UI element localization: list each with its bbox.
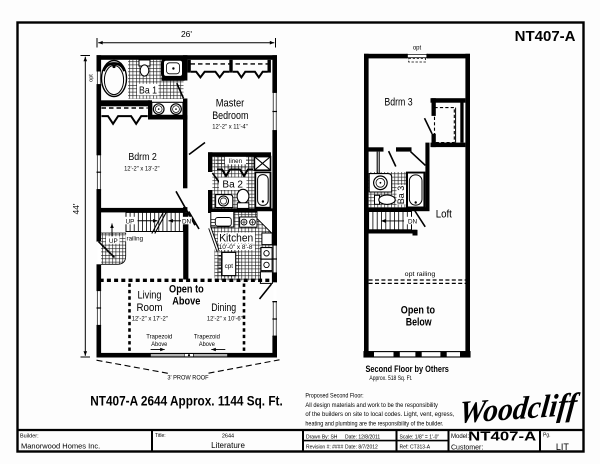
svg-text:3' PROW ROOF: 3' PROW ROOF <box>167 375 208 382</box>
svg-text:Bedroom: Bedroom <box>212 110 248 122</box>
svg-text:Date: 12/8/2011: Date: 12/8/2011 <box>345 435 380 441</box>
svg-text:12'-2" x 17'-2": 12'-2" x 17'-2" <box>132 316 168 323</box>
svg-text:Master: Master <box>216 97 245 109</box>
svg-text:opt: opt <box>413 46 422 52</box>
svg-text:DN: DN <box>408 218 418 225</box>
svg-text:Date: 8/7/2012: Date: 8/7/2012 <box>345 445 378 451</box>
svg-text:opt railing: opt railing <box>405 271 436 278</box>
svg-text:Title:: Title: <box>155 433 166 439</box>
svg-text:heating and plumbing are the r: heating and plumbing are the responsibil… <box>305 420 443 427</box>
svg-text:Scale: 1/8" = 1'-0": Scale: 1/8" = 1'-0" <box>400 435 440 441</box>
svg-text:Ba 1: Ba 1 <box>139 84 157 96</box>
svg-text:Proposed Second Floor:: Proposed Second Floor: <box>305 393 363 400</box>
svg-text:Pg.: Pg. <box>543 433 551 439</box>
svg-text:Ba 2: Ba 2 <box>222 180 243 191</box>
svg-text:UP: UP <box>109 238 118 245</box>
svg-text:Below: Below <box>406 317 432 329</box>
svg-text:Above: Above <box>151 341 168 348</box>
svg-text:NT407-A 2644 Approx. 1144 Sq.: NT407-A 2644 Approx. 1144 Sq. Ft. <box>90 392 283 408</box>
svg-text:railing: railing <box>127 235 144 242</box>
svg-text:NT407-A: NT407-A <box>468 430 536 444</box>
svg-text:of the builders on site to loc: of the builders on site to local codes. … <box>305 411 454 418</box>
svg-text:cpt: cpt <box>225 263 234 270</box>
svg-text:Builder:: Builder: <box>20 434 39 440</box>
svg-text:Trapezoid: Trapezoid <box>194 333 221 340</box>
svg-text:opt: opt <box>89 74 95 82</box>
svg-text:Literature: Literature <box>211 441 245 450</box>
svg-text:NT407-A: NT407-A <box>515 28 576 45</box>
svg-text:Above: Above <box>199 341 216 348</box>
svg-text:Dining: Dining <box>211 302 236 314</box>
svg-text:Second Floor by Others: Second Floor by Others <box>366 364 449 374</box>
svg-text:12'-2" x 11'-4": 12'-2" x 11'-4" <box>212 124 248 131</box>
svg-text:LIT: LIT <box>556 442 570 452</box>
svg-text:Revision #: ####: Revision #: #### <box>306 445 343 451</box>
svg-text:Room: Room <box>137 302 163 314</box>
svg-text:Open to: Open to <box>401 304 435 316</box>
svg-text:Trapezoid: Trapezoid <box>146 333 173 340</box>
svg-text:linen: linen <box>229 158 243 165</box>
svg-text:10'-0" x 8'-8": 10'-0" x 8'-8" <box>219 244 255 251</box>
svg-text:Ref: CT313-A: Ref: CT313-A <box>400 445 431 451</box>
svg-text:Loft: Loft <box>436 209 452 221</box>
svg-text:Customer:: Customer: <box>451 444 483 451</box>
svg-text:Open to: Open to <box>169 284 204 296</box>
svg-text:Above: Above <box>172 296 200 308</box>
svg-text:Drawn By: SH: Drawn By: SH <box>306 435 338 441</box>
svg-text:Bdrm 3: Bdrm 3 <box>384 96 412 108</box>
svg-text:Bdrm 2: Bdrm 2 <box>128 152 157 163</box>
svg-text:Ba 3: Ba 3 <box>396 186 406 205</box>
svg-text:DN: DN <box>182 218 192 225</box>
svg-text:44': 44' <box>71 203 81 214</box>
svg-text:Manorwood Homes Inc.: Manorwood Homes Inc. <box>21 442 100 451</box>
svg-text:All design materials and work: All design materials and work to be the … <box>305 402 438 409</box>
svg-text:Model:: Model: <box>451 434 469 440</box>
svg-text:Kitchen: Kitchen <box>219 233 253 245</box>
svg-text:2644: 2644 <box>222 434 234 440</box>
svg-text:26': 26' <box>181 29 192 39</box>
svg-text:Approx. 518 Sq. Ft.: Approx. 518 Sq. Ft. <box>369 375 412 382</box>
svg-text:Living: Living <box>138 289 162 301</box>
svg-text:12'-2" x 10'-6": 12'-2" x 10'-6" <box>207 316 243 323</box>
svg-text:UP: UP <box>126 218 135 225</box>
svg-text:12'-2" x 13'-2": 12'-2" x 13'-2" <box>124 166 159 173</box>
